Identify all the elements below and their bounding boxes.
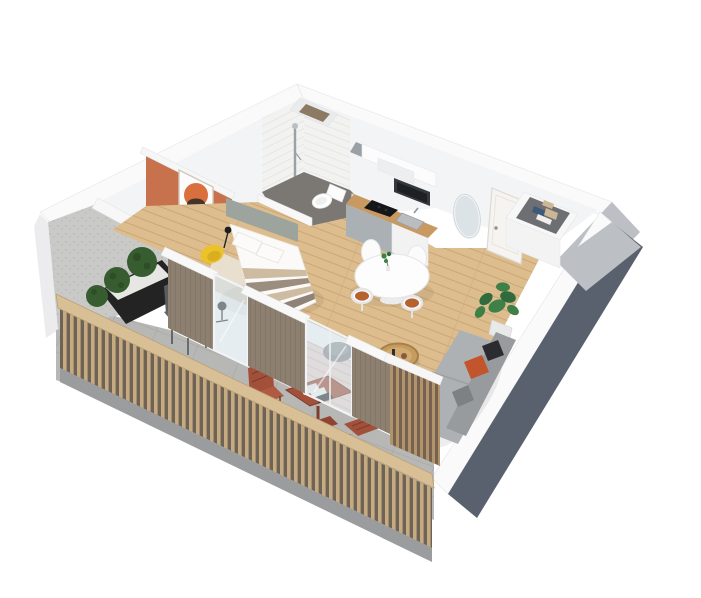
bedroom-window-glass <box>214 274 248 366</box>
bowl <box>401 353 407 359</box>
cooktop-burner <box>378 206 381 209</box>
boxwood-ball <box>127 247 157 277</box>
cooktop-burner <box>385 209 388 212</box>
floorplan-svg <box>0 0 701 598</box>
boxwood-ball <box>86 285 108 307</box>
floorplan-render <box>0 0 701 598</box>
boxwood-ball <box>104 267 130 293</box>
door-handle <box>494 226 497 229</box>
chair-cushion <box>355 291 369 300</box>
chair-cushion <box>405 298 419 307</box>
